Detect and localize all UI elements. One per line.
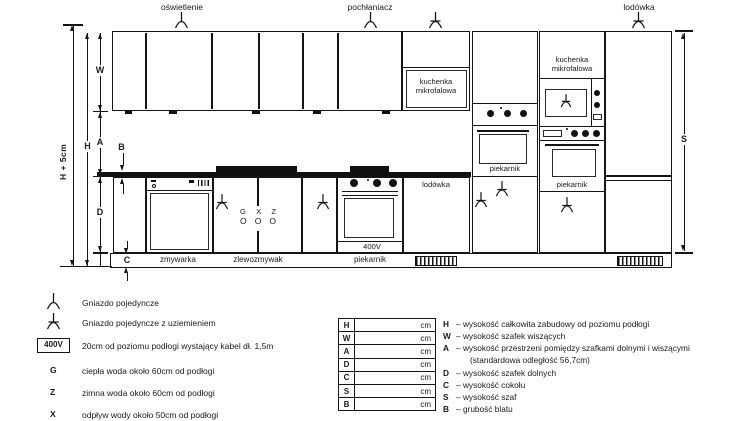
indicator-dot	[500, 107, 502, 109]
legend-hot-water: ciepła woda około 60cm od podłogi	[82, 367, 214, 377]
cooker-oven-door	[344, 198, 394, 238]
dishwasher-buttons	[198, 180, 211, 186]
cabinet-divider	[302, 33, 304, 109]
dim-label-a: A	[94, 137, 106, 148]
label-pochlaniacz: pochłaniacz	[333, 3, 407, 12]
cabinet-divider	[212, 178, 214, 252]
oven-handle	[545, 144, 599, 146]
dim-desc: wysokość całkowita zabudowy od poziomu p…	[463, 319, 649, 329]
table-row: Dcm	[339, 358, 436, 371]
oven-handle	[477, 130, 529, 132]
cooker-knob	[389, 179, 397, 187]
earthed-socket-icon	[428, 12, 443, 29]
dim-label-c: C	[121, 255, 133, 266]
water-points: G X Z O O O	[237, 207, 279, 227]
row-key: B	[339, 398, 355, 411]
dishwasher-display	[189, 180, 194, 183]
dishwasher-icon	[151, 180, 156, 182]
dash: –	[456, 368, 461, 378]
water-outlet: O	[255, 216, 262, 227]
earthed-socket-icon	[46, 313, 61, 330]
dim-key: H	[443, 320, 456, 329]
row-unit[interactable]: cm	[355, 319, 436, 332]
legend-key-g: G	[50, 366, 57, 376]
row-key: S	[339, 384, 355, 397]
legend-dim-a: A– wysokość przestrzeni pomiędzy szafkam…	[443, 344, 690, 353]
indicator-dot	[566, 128, 568, 130]
microwave-control-strip	[591, 79, 592, 126]
plinth-label-zmywarka: zmywarka	[145, 256, 211, 265]
cabinet-divider	[145, 33, 147, 109]
dim-line-b	[123, 153, 124, 165]
under-cabinet-light	[169, 111, 177, 114]
under-cabinet-light	[252, 111, 260, 114]
oven-label: piekarnik	[539, 181, 605, 190]
dim-key: W	[443, 332, 456, 341]
dimensions-table: Hcm Wcm Acm Dcm Ccm Scm Bcm	[338, 318, 436, 411]
dash: –	[456, 392, 461, 402]
hob-top	[350, 166, 389, 172]
dishwasher-icon	[152, 184, 156, 188]
earthed-socket-icon	[495, 181, 509, 197]
microwave-knob	[594, 102, 600, 108]
cabinet-divider	[473, 176, 537, 177]
earthed-socket-icon	[474, 192, 488, 208]
legend-dim-b: B– grubość blatu	[443, 405, 513, 414]
dim-key: A	[443, 344, 456, 353]
oven-display	[543, 130, 562, 137]
dim-label-d: D	[94, 207, 106, 218]
arrowhead	[98, 169, 102, 175]
oven-knob	[504, 110, 511, 117]
earthed-socket-icon	[560, 197, 574, 213]
floor-tick	[60, 266, 112, 267]
wall-cabinet-run	[112, 31, 402, 111]
row-key: H	[339, 319, 355, 332]
table-row: Ccm	[339, 371, 436, 384]
row-key: C	[339, 371, 355, 384]
cooker-handle	[342, 195, 398, 196]
plinth-vent	[617, 256, 663, 266]
dim-key: S	[443, 393, 456, 402]
dim-label-h-plus-5: H + 5cm	[58, 118, 68, 180]
drain-mark: X	[256, 207, 261, 216]
dim-label-s: S	[678, 134, 690, 145]
table-row: Scm	[339, 384, 436, 397]
cabinet-divider	[606, 180, 671, 181]
dim-key: B	[443, 405, 456, 414]
dim-line-h5	[73, 25, 74, 266]
dim-line-c	[127, 273, 128, 281]
dim-key: D	[443, 369, 456, 378]
dim-label-w: W	[94, 65, 106, 76]
water-outlet: O	[269, 216, 276, 227]
label-lodowka-top: lodówka	[603, 3, 675, 12]
sink-top	[216, 166, 297, 172]
row-unit[interactable]: cm	[355, 384, 436, 397]
row-key: W	[339, 332, 355, 345]
legend-400v-badge: 400V	[37, 338, 70, 353]
row-unit[interactable]: cm	[355, 398, 436, 411]
dim-line-b	[123, 184, 124, 194]
cooker-knob	[350, 179, 358, 187]
oven-knob	[593, 130, 600, 137]
row-key: A	[339, 345, 355, 358]
table-row: Acm	[339, 345, 436, 358]
arrowhead	[85, 260, 89, 266]
cabinet-divider	[540, 126, 604, 127]
arrowhead	[124, 248, 128, 254]
dim-key: C	[443, 381, 456, 390]
legend-dim-s: S– wysokość szaf	[443, 393, 516, 402]
legend-socket-single: Gniazdo pojedyncze	[82, 299, 159, 309]
dim-tick	[675, 252, 693, 254]
microwave-label-2: kuchenka mikrofalowa	[541, 56, 603, 73]
cabinet-divider	[301, 178, 303, 252]
fridge-label: lodówka	[404, 181, 468, 190]
indicator-dot	[367, 179, 369, 181]
dim-desc: wysokość przestrzeni pomiędzy szafkami d…	[463, 343, 690, 353]
dim-tick	[93, 252, 108, 253]
table-row: Hcm	[339, 319, 436, 332]
arrowhead	[681, 33, 685, 39]
row-unit[interactable]: cm	[355, 371, 436, 384]
dash: –	[456, 319, 461, 329]
cabinet-divider	[257, 178, 259, 206]
dim-desc: wysokość cokołu	[463, 380, 525, 390]
plinth-label-piekarnik: piekarnik	[337, 256, 403, 265]
oven-label: piekarnik	[472, 165, 538, 174]
plinth-label-zlewozmywak: zlewozmywak	[220, 256, 296, 265]
row-unit[interactable]: cm	[355, 345, 436, 358]
microwave-button	[593, 114, 602, 120]
table-row: Bcm	[339, 398, 436, 411]
legend-drain: odpływ wody około 50cm od podłogi	[82, 411, 218, 421]
water-outlet: O	[240, 216, 247, 227]
dash: –	[456, 343, 461, 353]
oven-knob	[571, 130, 578, 137]
arrowhead	[85, 33, 89, 39]
cabinet-divider	[473, 103, 537, 104]
dim-label-h: H	[82, 141, 93, 152]
socket-single-icon	[46, 293, 61, 310]
cabinet-divider	[540, 78, 604, 79]
dim-tick	[675, 30, 693, 32]
dash: –	[456, 380, 461, 390]
legend-key-x: X	[50, 410, 56, 420]
legend-socket-earthed: Gniazdo pojedyncze z uziemieniem	[82, 319, 216, 329]
cabinet-divider	[540, 140, 604, 141]
plinth-vent	[415, 256, 457, 266]
arrowhead	[98, 112, 102, 118]
arrowhead	[120, 165, 124, 171]
hot-water-mark: G	[240, 207, 246, 216]
dim-desc: wysokość szafek dolnych	[463, 368, 556, 378]
tall-cabinet-fridge	[605, 31, 672, 253]
under-cabinet-light	[125, 111, 132, 114]
oven-knob	[487, 110, 494, 117]
dim-desc: grubość blatu	[463, 404, 513, 414]
legend-dim-a-note: (standardowa odległość 56,7cm)	[470, 356, 590, 365]
cabinet-divider	[473, 125, 537, 126]
earthed-socket-icon	[631, 12, 646, 29]
arrowhead	[98, 177, 102, 183]
oven-knob	[520, 110, 527, 117]
cooker-volt-label: 400V	[352, 243, 392, 252]
microwave-knob	[594, 90, 600, 96]
legend-cable: 20cm od poziomu podłogi wystający kabel …	[82, 342, 273, 352]
cooker-trim	[342, 191, 398, 192]
microwave-label: kuchenka mikrofalowa	[406, 78, 466, 95]
oven-door	[479, 134, 527, 164]
legend-dim-c: C– wysokość cokołu	[443, 381, 525, 390]
cold-water-mark: Z	[271, 207, 276, 216]
cooker-knob	[373, 179, 381, 187]
earthed-socket-icon	[215, 194, 229, 210]
row-unit[interactable]: cm	[355, 332, 436, 345]
socket-single-icon	[174, 12, 189, 29]
legend-cold-water: zimna woda około 60cm od podłogi	[82, 389, 215, 399]
row-key: D	[339, 358, 355, 371]
legend-dim-h: H– wysokość całkowita zabudowy od poziom…	[443, 320, 649, 329]
dash: –	[456, 404, 461, 414]
cabinet-divider	[606, 175, 671, 177]
arrowhead	[98, 246, 102, 252]
dim-label-b: B	[116, 142, 127, 153]
socket-single-icon	[363, 12, 378, 29]
legend-key-z: Z	[50, 388, 55, 398]
under-cabinet-light	[313, 111, 321, 114]
label-oswietlenie: oświetlenie	[145, 3, 219, 12]
cabinet-divider	[257, 231, 259, 252]
oven-knob	[582, 130, 589, 137]
cabinet-divider	[540, 191, 604, 192]
cabinet-divider	[258, 33, 260, 109]
earthed-socket-icon	[316, 194, 330, 210]
dishwasher-door	[150, 193, 209, 250]
table-row: Wcm	[339, 332, 436, 345]
dishwasher-panel-line	[146, 190, 212, 191]
dash: –	[456, 331, 461, 341]
cabinet-divider	[211, 33, 213, 109]
kitchen-elevation-diagram: oświetlenie pochłaniacz lodówka kuchenka…	[0, 0, 735, 421]
dim-desc: wysokość szaf	[463, 392, 516, 402]
oven-door	[552, 149, 596, 177]
under-cabinet-light	[382, 111, 390, 114]
legend-dim-d: D– wysokość szafek dolnych	[443, 369, 556, 378]
row-unit[interactable]: cm	[355, 358, 436, 371]
cabinet-divider	[337, 33, 339, 109]
arrowhead	[98, 33, 102, 39]
dim-desc: wysokość szafek wiszących	[463, 331, 565, 341]
wall-cabinet-short	[402, 31, 470, 68]
legend-dim-w: W– wysokość szafek wiszących	[443, 332, 565, 341]
earthed-socket-icon	[560, 94, 572, 108]
arrowhead	[681, 245, 685, 251]
arrowhead	[70, 25, 74, 31]
